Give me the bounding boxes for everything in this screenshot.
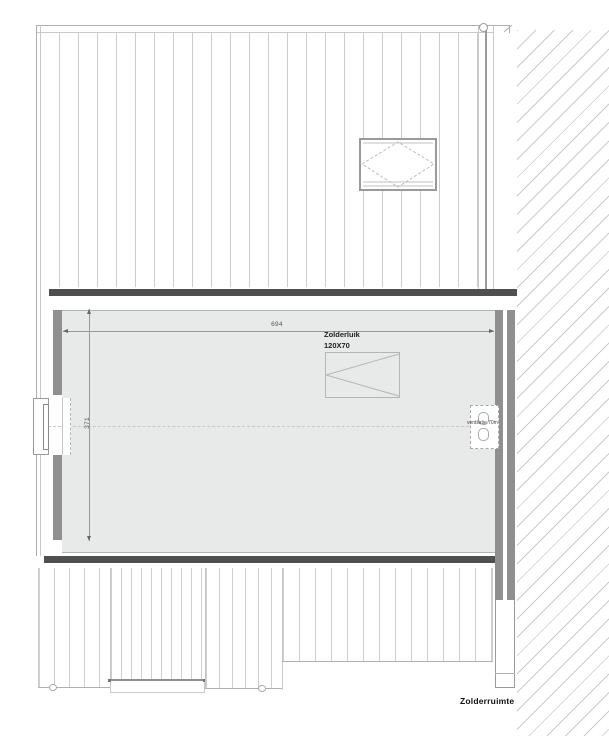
attic-top-wall	[49, 289, 517, 296]
lower-roof-segment-d	[282, 568, 493, 662]
dim-height-arrow-down-icon	[87, 536, 91, 541]
right-wall-footing	[495, 600, 515, 688]
lower-roof-segment-a	[38, 568, 110, 688]
skylight	[359, 138, 437, 191]
attic-bottom-wall	[44, 556, 495, 563]
right-wall-inner-leaf	[495, 310, 503, 600]
existing-roof-hatch	[517, 30, 609, 736]
attic-hatch-symbol	[325, 352, 400, 398]
left-wall-lower-segment	[53, 455, 62, 540]
segment-b-lower-line	[110, 692, 205, 693]
dim-width-arrow-right-icon	[489, 329, 494, 333]
attic-hatch-size-label: 120X70	[324, 341, 350, 350]
roof-marker-circle-icon	[479, 23, 488, 32]
attic-hatch-name-label: Zolderluik	[324, 330, 360, 339]
roof-edge-line	[485, 25, 487, 289]
left-inner-wall-line	[40, 25, 41, 556]
dormer-window-sash	[43, 404, 49, 450]
attic-floor	[62, 310, 495, 553]
roof-outline-top	[36, 25, 509, 26]
roof-right-line-1	[478, 25, 479, 289]
fastener-marker-right-icon	[258, 685, 266, 692]
roof-inner-top-line	[36, 32, 493, 33]
dim-width-line	[63, 331, 494, 332]
segment-b-dot-left	[108, 679, 111, 682]
dim-height-label: 371	[84, 408, 94, 438]
left-wall-upper-segment	[53, 310, 62, 395]
skylight-symbol-icon	[361, 140, 435, 189]
floor-plan-canvas: 694 371 Zolderluik 120X70 ventilatie 70m…	[0, 0, 609, 736]
ventilation-grille-bottom-icon	[478, 428, 489, 441]
lower-roof-segment-b	[110, 568, 205, 681]
footing-divider-line	[495, 673, 515, 674]
right-wall-outer-leaf	[507, 310, 515, 600]
attic-hatch-swing-icon	[326, 353, 399, 397]
insulation-strip	[62, 398, 71, 455]
dim-width-arrow-left-icon	[63, 329, 68, 333]
roof-right-line-2	[493, 25, 494, 289]
dim-width-label: 694	[227, 321, 327, 328]
segment-d-step-line	[282, 662, 283, 690]
dim-height-arrow-up-icon	[87, 309, 91, 314]
center-axis-line	[33, 426, 499, 427]
fastener-marker-left-icon	[49, 684, 57, 691]
segment-b-conn-left	[110, 681, 111, 693]
lower-roof-segment-c	[205, 568, 282, 689]
ventilation-label: ventilatie 70m	[467, 420, 498, 426]
room-name-label: Zolderruimte	[460, 696, 514, 706]
left-outer-wall-line	[36, 25, 37, 556]
